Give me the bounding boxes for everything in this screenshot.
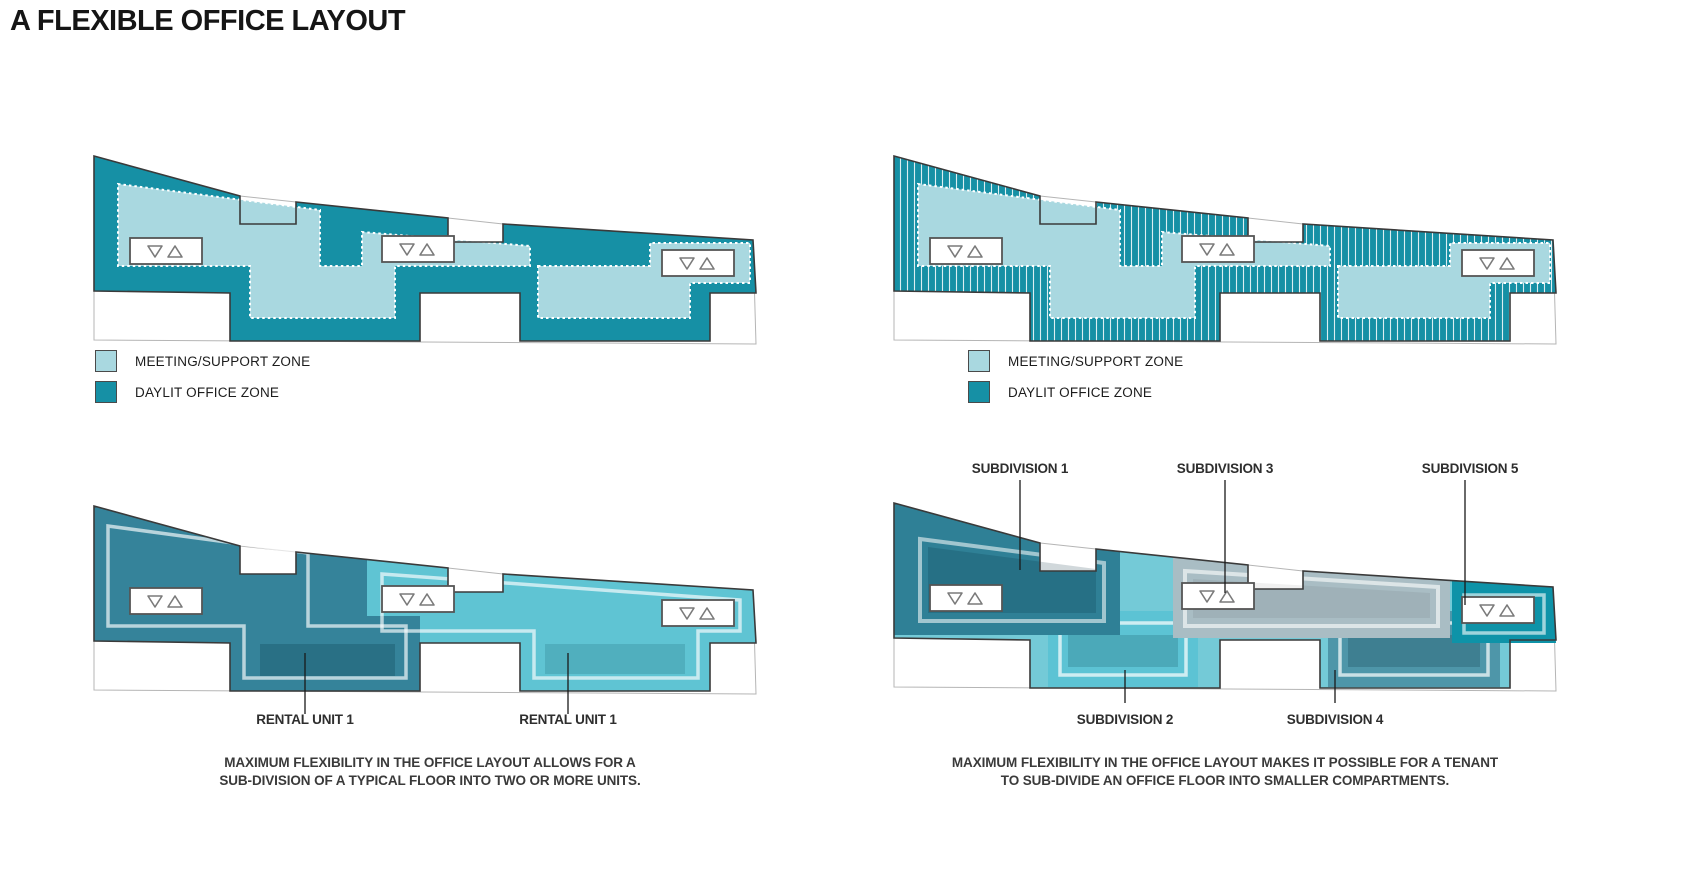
legend-right: MEETING/SUPPORT ZONE DAYLIT OFFICE ZONE [968,350,1183,403]
meeting-zone-swatch [95,350,117,372]
subdivision-5-label: SUBDIVISION 5 [1360,461,1580,476]
page-title: A FLEXIBLE OFFICE LAYOUT [10,5,405,38]
subdivision-3-label: SUBDIVISION 3 [1115,461,1335,476]
caption-line: SUB-DIVISION OF A TYPICAL FLOOR INTO TWO… [80,772,780,790]
elevator-box [1462,597,1534,623]
legend-label: DAYLIT OFFICE ZONE [1008,385,1152,400]
legend-label: DAYLIT OFFICE ZONE [135,385,279,400]
elevator-box [662,250,734,276]
caption-line: MAXIMUM FLEXIBILITY IN THE OFFICE LAYOUT… [875,754,1575,772]
elevator-box [1462,250,1534,276]
page: A FLEXIBLE OFFICE LAYOUT MEETING/SUPPORT… [0,0,1700,875]
caption-right: MAXIMUM FLEXIBILITY IN THE OFFICE LAYOUT… [875,754,1575,790]
subdivision-1-label: SUBDIVISION 1 [910,461,1130,476]
subdivision-4-label: SUBDIVISION 4 [1225,712,1445,727]
elevator-box [130,588,202,614]
caption-left: MAXIMUM FLEXIBILITY IN THE OFFICE LAYOUT… [80,754,780,790]
floor-plan-desk-layout [890,148,1560,358]
floor-plan-five-subdivisions [890,455,1560,705]
rental-unit-2-label: RENTAL UNIT 1 [458,712,678,727]
unit-1-support-band [260,644,395,676]
elevator-icon [662,250,734,276]
legend-label: MEETING/SUPPORT ZONE [135,354,310,369]
caption-line: MAXIMUM FLEXIBILITY IN THE OFFICE LAYOUT… [80,754,780,772]
elevator-box [930,238,1002,264]
legend-item-office-zone: DAYLIT OFFICE ZONE [968,381,1183,403]
elevator-icon [1462,597,1534,623]
elevator-icon [662,600,734,626]
elevator-icon [930,585,1002,611]
elevator-icon [1182,583,1254,609]
legend-label: MEETING/SUPPORT ZONE [1008,354,1183,369]
elevator-box [930,585,1002,611]
elevator-icon [1182,236,1254,262]
elevator-icon [130,238,202,264]
floor-plan-two-rental-units [90,488,760,718]
elevator-icon [382,586,454,612]
office-zone-swatch [95,381,117,403]
elevator-box [1182,583,1254,609]
elevator-box [382,586,454,612]
subdivision-2-label: SUBDIVISION 2 [1015,712,1235,727]
elevator-box [662,600,734,626]
legend-left: MEETING/SUPPORT ZONE DAYLIT OFFICE ZONE [95,350,310,403]
meeting-zone-swatch [968,350,990,372]
legend-item-meeting-zone: MEETING/SUPPORT ZONE [95,350,310,372]
caption-line: TO SUB-DIVIDE AN OFFICE FLOOR INTO SMALL… [875,772,1575,790]
elevator-box [382,236,454,262]
unit-2-support-band [545,644,685,674]
legend-item-office-zone: DAYLIT OFFICE ZONE [95,381,310,403]
legend-item-meeting-zone: MEETING/SUPPORT ZONE [968,350,1183,372]
elevator-icon [1462,250,1534,276]
floor-plan-typical-zoning [90,148,760,358]
rental-unit-1-label: RENTAL UNIT 1 [195,712,415,727]
elevator-box [1182,236,1254,262]
elevator-icon [382,236,454,262]
elevator-icon [930,238,1002,264]
office-zone-swatch [968,381,990,403]
elevator-box [130,238,202,264]
subdivision-2-band [1068,635,1178,667]
elevator-icon [130,588,202,614]
